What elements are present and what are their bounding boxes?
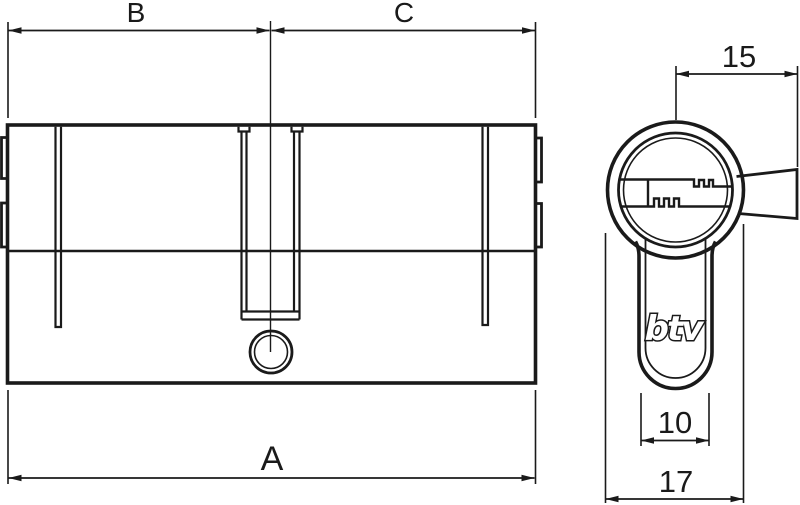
side-view-extension-lines — [8, 22, 536, 484]
body-circle-outer — [608, 122, 744, 258]
anti-drill-pin-right — [483, 127, 489, 325]
dim-10-arrow-right — [696, 437, 709, 443]
dim-a-label: A — [261, 440, 284, 478]
end-view-extension-lines — [606, 66, 798, 503]
dim-a-arrow-left — [9, 475, 22, 481]
dim-17-arrow-left — [606, 496, 619, 502]
dim-a-arrow-right — [522, 475, 535, 481]
dim-15-arrow-left — [676, 71, 689, 77]
dim-b-arrow-right — [257, 27, 270, 33]
dim-c-arrow-right — [522, 27, 535, 33]
end-view: btv 15 10 17 — [606, 39, 798, 503]
cam-lobe — [737, 170, 798, 219]
plug-ring-inner — [624, 138, 728, 242]
dim-17-arrow-right — [731, 496, 744, 502]
dim-10-arrow-left — [641, 437, 654, 443]
plug-ring — [619, 133, 733, 247]
keyway-top-profile — [620, 180, 731, 187]
dim-15-label: 15 — [722, 39, 756, 74]
dim-c-arrow-left — [272, 27, 285, 33]
dim-15-arrow-right — [785, 71, 798, 77]
cylinder-body-outline — [8, 125, 536, 383]
dim-10-label: 10 — [658, 405, 692, 440]
anti-drill-pin-left — [56, 127, 62, 327]
side-view: B C A — [2, 0, 542, 484]
keyway-bottom-profile — [621, 199, 730, 207]
brand-logo: btv — [645, 309, 706, 349]
lock-cylinder-technical-drawing: B C A btv 15 — [0, 0, 800, 505]
dim-b-arrow-left — [9, 27, 22, 33]
dim-b-label: B — [127, 0, 146, 28]
drawing-svg: B C A btv 15 — [0, 0, 800, 505]
dim-c-label: C — [394, 0, 414, 28]
dim-17-label: 17 — [659, 464, 693, 499]
